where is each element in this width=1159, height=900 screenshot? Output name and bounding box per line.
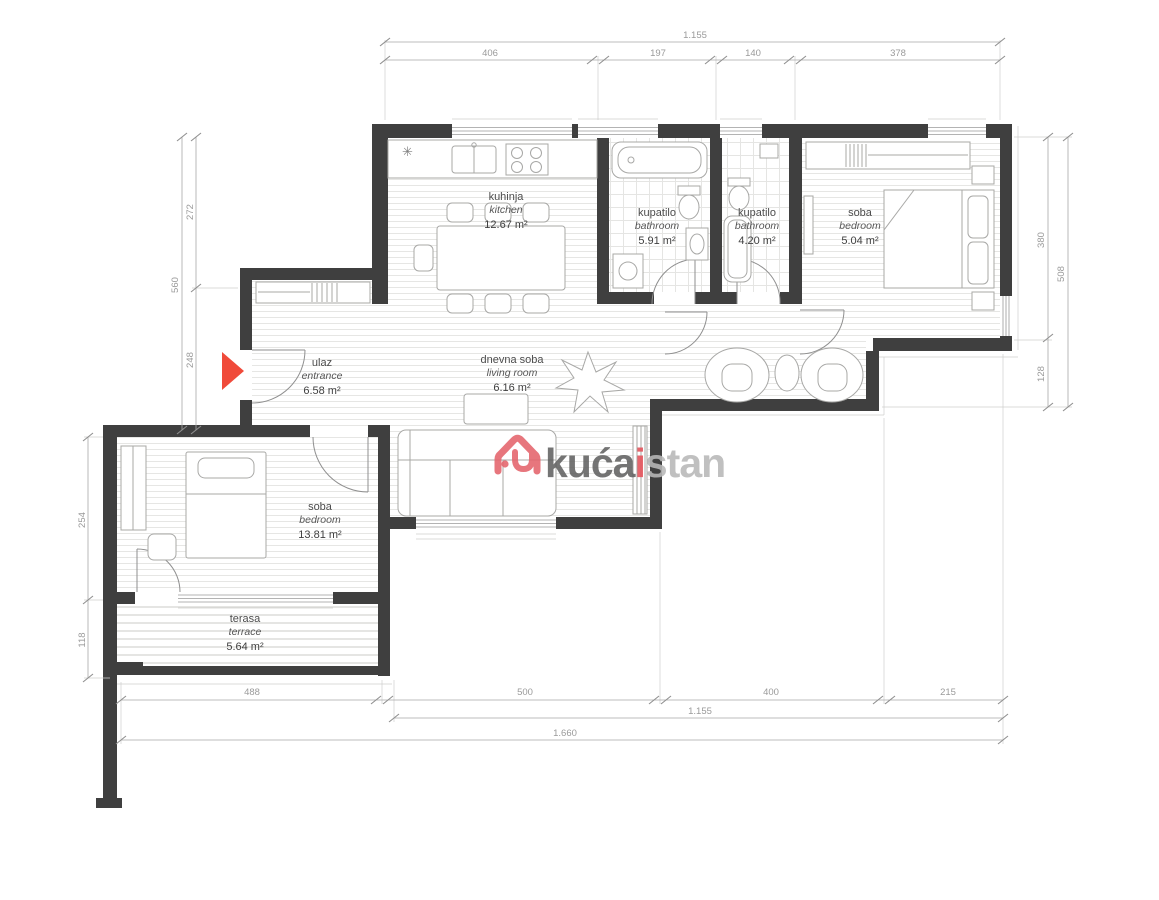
dim-bottom-total: 1.660: [553, 728, 577, 739]
room-living-name-en: living room: [487, 367, 538, 379]
terrace-window: [178, 592, 333, 604]
brand-i: i: [634, 440, 644, 486]
wall-kitchen-right: [597, 138, 609, 304]
kitchen-window: [452, 124, 572, 138]
room-kitchen-name: kuhinja: [489, 191, 525, 203]
dim-top-seg-3: 140: [745, 48, 761, 59]
wall-entrance-left: [240, 268, 252, 350]
dim-left-seg-1: 272: [185, 204, 196, 220]
wall-kitchen-left: [372, 124, 388, 304]
dim-top-seg-2: 197: [650, 48, 666, 59]
room-bedroom-right-name: soba: [848, 207, 873, 219]
room-bathroom1-name-en: bathroom: [635, 220, 680, 232]
side-table: [775, 355, 799, 391]
dim-bottom-seg-2: 500: [517, 687, 533, 698]
wall-terrace-bottom: [117, 666, 378, 675]
kitchen-vent-icon: ✳: [402, 144, 413, 159]
brand-kuca: kuća: [545, 440, 637, 486]
room-living-name: dnevna soba: [481, 354, 545, 366]
room-entrance-name-en: entrance: [302, 370, 343, 382]
single-bed: [186, 452, 266, 558]
nightstand: [972, 166, 994, 184]
dim-right-seg-2: 128: [1036, 366, 1047, 382]
bathroom1-window: [578, 124, 658, 138]
wall-bath-divider: [710, 138, 722, 304]
bedroom-right-window-top: [928, 124, 986, 138]
room-bathroom1-name: kupatilo: [638, 207, 676, 219]
dim-left-total: 560: [170, 277, 181, 293]
room-living-area: 6.16 m²: [493, 382, 531, 394]
wall-bedroom-left-right: [378, 430, 390, 676]
dim-top-total: 1.155: [683, 30, 707, 41]
bath2-sink-icon: [760, 144, 778, 158]
room-bathroom2-name-en: bathroom: [735, 220, 780, 232]
dim-right-total: 508: [1056, 266, 1067, 282]
dim-bottom-seg-1: 488: [244, 687, 260, 698]
room-bedroom-left-name: soba: [308, 501, 333, 513]
dim-bottom-seg-4: 215: [940, 687, 956, 698]
entrance-arrow-icon: [222, 352, 244, 390]
room-entrance-area: 6.58 m²: [303, 385, 341, 397]
brand-wordmark: kućaistan: [545, 440, 725, 486]
room-bedroom-left-name-en: bedroom: [299, 514, 341, 526]
floor-plan-page: ✳: [0, 0, 1159, 900]
room-terrace-name: terasa: [230, 613, 261, 625]
washbasin-icon: [686, 228, 708, 260]
dim-right-seg-1: 380: [1036, 232, 1047, 248]
room-bathroom2-name: kupatilo: [738, 207, 776, 219]
nightstand: [972, 292, 994, 310]
wall-bedroom-right-bottom: [873, 338, 1012, 351]
bedroom-right-window-side: [1000, 296, 1012, 336]
floor-plan-image: ✳: [0, 0, 1159, 900]
dim-left-seg-2: 248: [185, 352, 196, 368]
brand-stan: stan: [645, 440, 725, 486]
room-bedroom-right-area: 5.04 m²: [841, 235, 879, 247]
room-terrace-name-en: terrace: [229, 626, 262, 638]
wall-lounge-bottom: [650, 399, 879, 411]
washing-machine-icon: [613, 254, 643, 288]
room-bathroom2-area: 4.20 m²: [738, 235, 776, 247]
toilet-icon: [678, 186, 700, 219]
living-room-window: [416, 517, 556, 529]
wardrobe-right: [806, 142, 970, 169]
armchair: [801, 348, 863, 402]
dim-left-lower-seg-1: 254: [77, 512, 88, 528]
room-bedroom-right-name-en: bedroom: [839, 220, 881, 232]
dim-top-seg-4: 378: [890, 48, 906, 59]
room-kitchen-area: 12.67 m²: [484, 219, 528, 231]
dim-top-seg-1: 406: [482, 48, 498, 59]
radiator: [804, 196, 813, 254]
dim-bottom-seg-3: 400: [763, 687, 779, 698]
wall-bedroom-right-left: [789, 138, 802, 304]
bathtub-icon: [612, 142, 707, 178]
sofa: [398, 430, 556, 516]
wall-bedroom-left-top: [103, 425, 310, 437]
wall-entrance-top: [240, 268, 372, 280]
entrance-closet: [256, 282, 370, 303]
stool: [148, 534, 176, 560]
bathroom2-window: [720, 124, 762, 138]
room-bedroom-left-area: 13.81 m²: [298, 529, 342, 541]
room-kitchen-name-en: kitchen: [489, 204, 522, 216]
kitchen-counter: [388, 140, 597, 178]
dim-bottom-subtotal: 1.155: [688, 706, 712, 717]
room-entrance-name: ulaz: [312, 357, 332, 369]
toilet2-icon: [728, 178, 750, 210]
dim-left-lower-seg-2: 118: [77, 632, 88, 647]
room-terrace-area: 5.64 m²: [226, 641, 264, 653]
coffee-table: [464, 394, 528, 424]
armchair: [705, 348, 769, 402]
wardrobe-left: [121, 446, 146, 530]
room-bathroom1-area: 5.91 m²: [638, 235, 676, 247]
double-bed: [884, 190, 994, 288]
wall-left-column: [103, 425, 117, 808]
